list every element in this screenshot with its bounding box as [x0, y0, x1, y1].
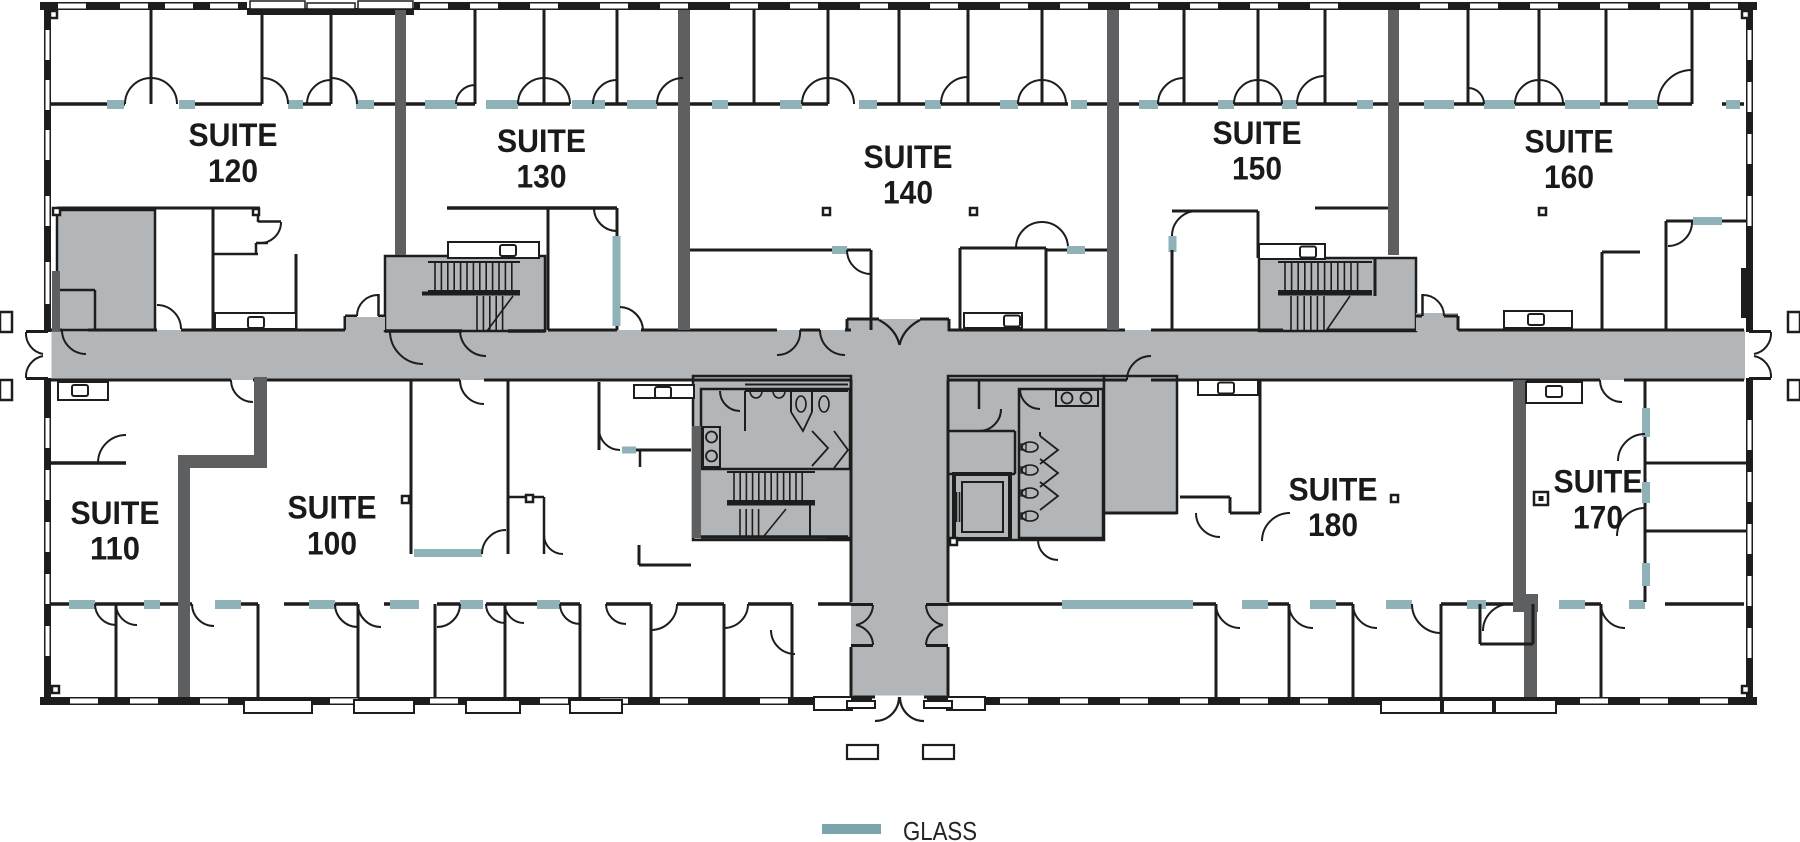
svg-text:110: 110	[90, 531, 140, 567]
svg-text:180: 180	[1308, 507, 1358, 543]
svg-text:SUITE: SUITE	[1213, 115, 1302, 151]
svg-text:170: 170	[1573, 500, 1623, 536]
svg-text:160: 160	[1544, 159, 1594, 195]
svg-text:130: 130	[517, 159, 567, 195]
svg-text:SUITE: SUITE	[1554, 464, 1643, 500]
svg-text:SUITE: SUITE	[189, 117, 278, 153]
svg-text:140: 140	[883, 175, 933, 211]
svg-text:100: 100	[307, 526, 357, 562]
svg-text:GLASS: GLASS	[903, 816, 977, 842]
svg-text:120: 120	[208, 153, 258, 189]
svg-text:150: 150	[1232, 151, 1282, 187]
svg-text:SUITE: SUITE	[288, 490, 377, 526]
svg-text:SUITE: SUITE	[1289, 472, 1378, 508]
svg-text:SUITE: SUITE	[497, 123, 586, 159]
svg-text:SUITE: SUITE	[1525, 124, 1614, 160]
svg-text:SUITE: SUITE	[864, 139, 953, 175]
svg-text:SUITE: SUITE	[71, 495, 160, 531]
